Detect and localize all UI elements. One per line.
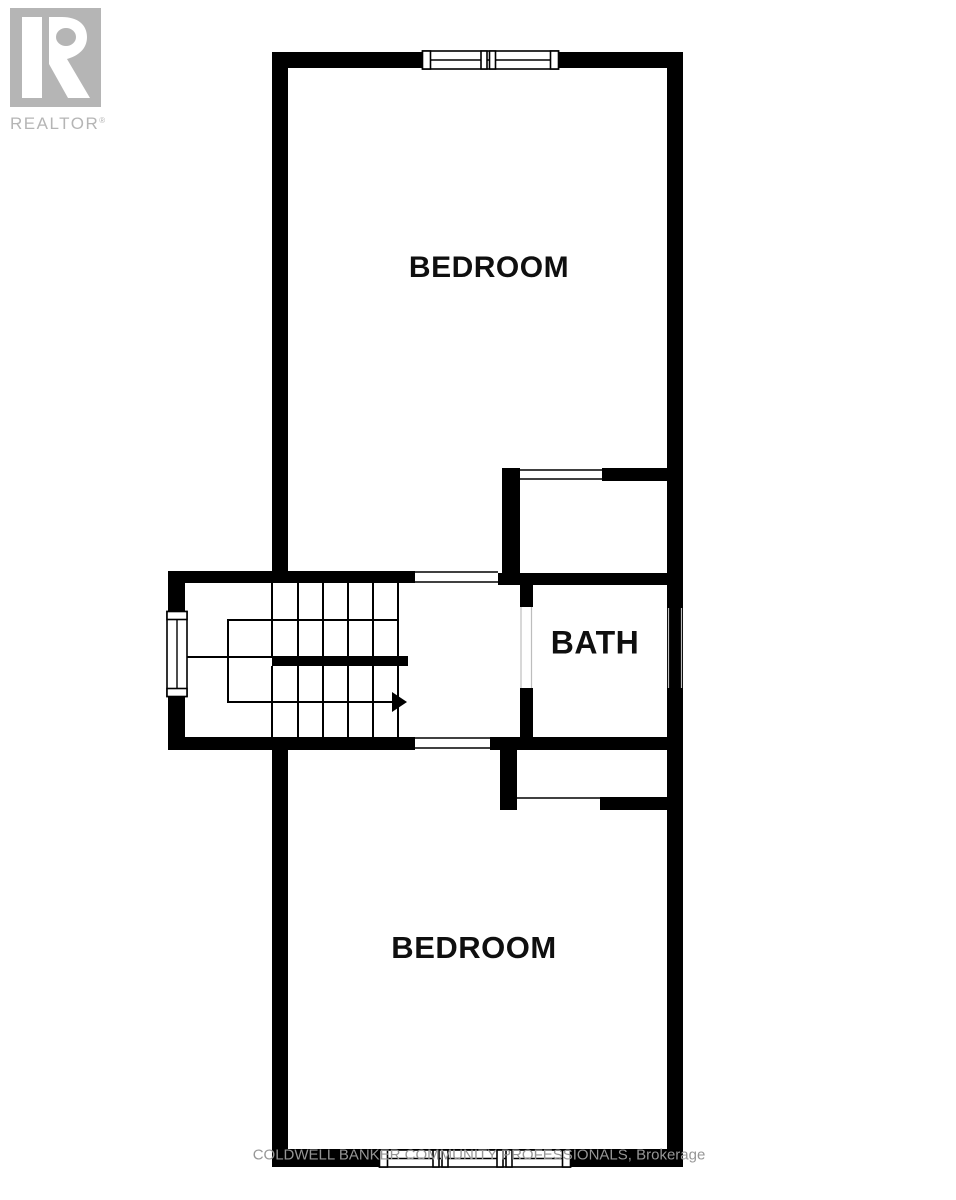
floorplan-drawing <box>0 0 956 1200</box>
wall-bath-left-stub <box>520 585 533 607</box>
wall-closet-vertical <box>502 468 520 585</box>
wall-hall-stub <box>500 745 517 810</box>
wall-bedroom2-top <box>600 797 667 810</box>
floorplan-page: REALTOR® <box>0 0 956 1200</box>
room-label-bedroom-upper: BEDROOM <box>409 251 569 285</box>
wall-bath-bottom <box>490 737 683 750</box>
wall-stair-bottom <box>168 737 415 750</box>
wall-left-upper <box>272 52 288 573</box>
wall-bath-left-lower <box>520 688 533 737</box>
walls <box>168 52 683 1167</box>
room-label-bedroom-lower: BEDROOM <box>391 930 556 966</box>
wall-bath-top <box>498 573 683 585</box>
brokerage-text: COLDWELL BANKER COMMUNITY PROFESSIONALS,… <box>253 1147 706 1164</box>
window-top <box>423 51 559 69</box>
wall-bedroom1-interior <box>602 468 667 481</box>
window-stair-left <box>167 612 187 697</box>
wall-stair-middle <box>272 656 408 666</box>
wall-left-lower <box>272 750 288 1167</box>
room-label-bath: BATH <box>551 625 640 662</box>
right-arrow-icon <box>392 692 407 712</box>
wall-right <box>667 52 683 1167</box>
wall-stair-top <box>168 571 415 583</box>
